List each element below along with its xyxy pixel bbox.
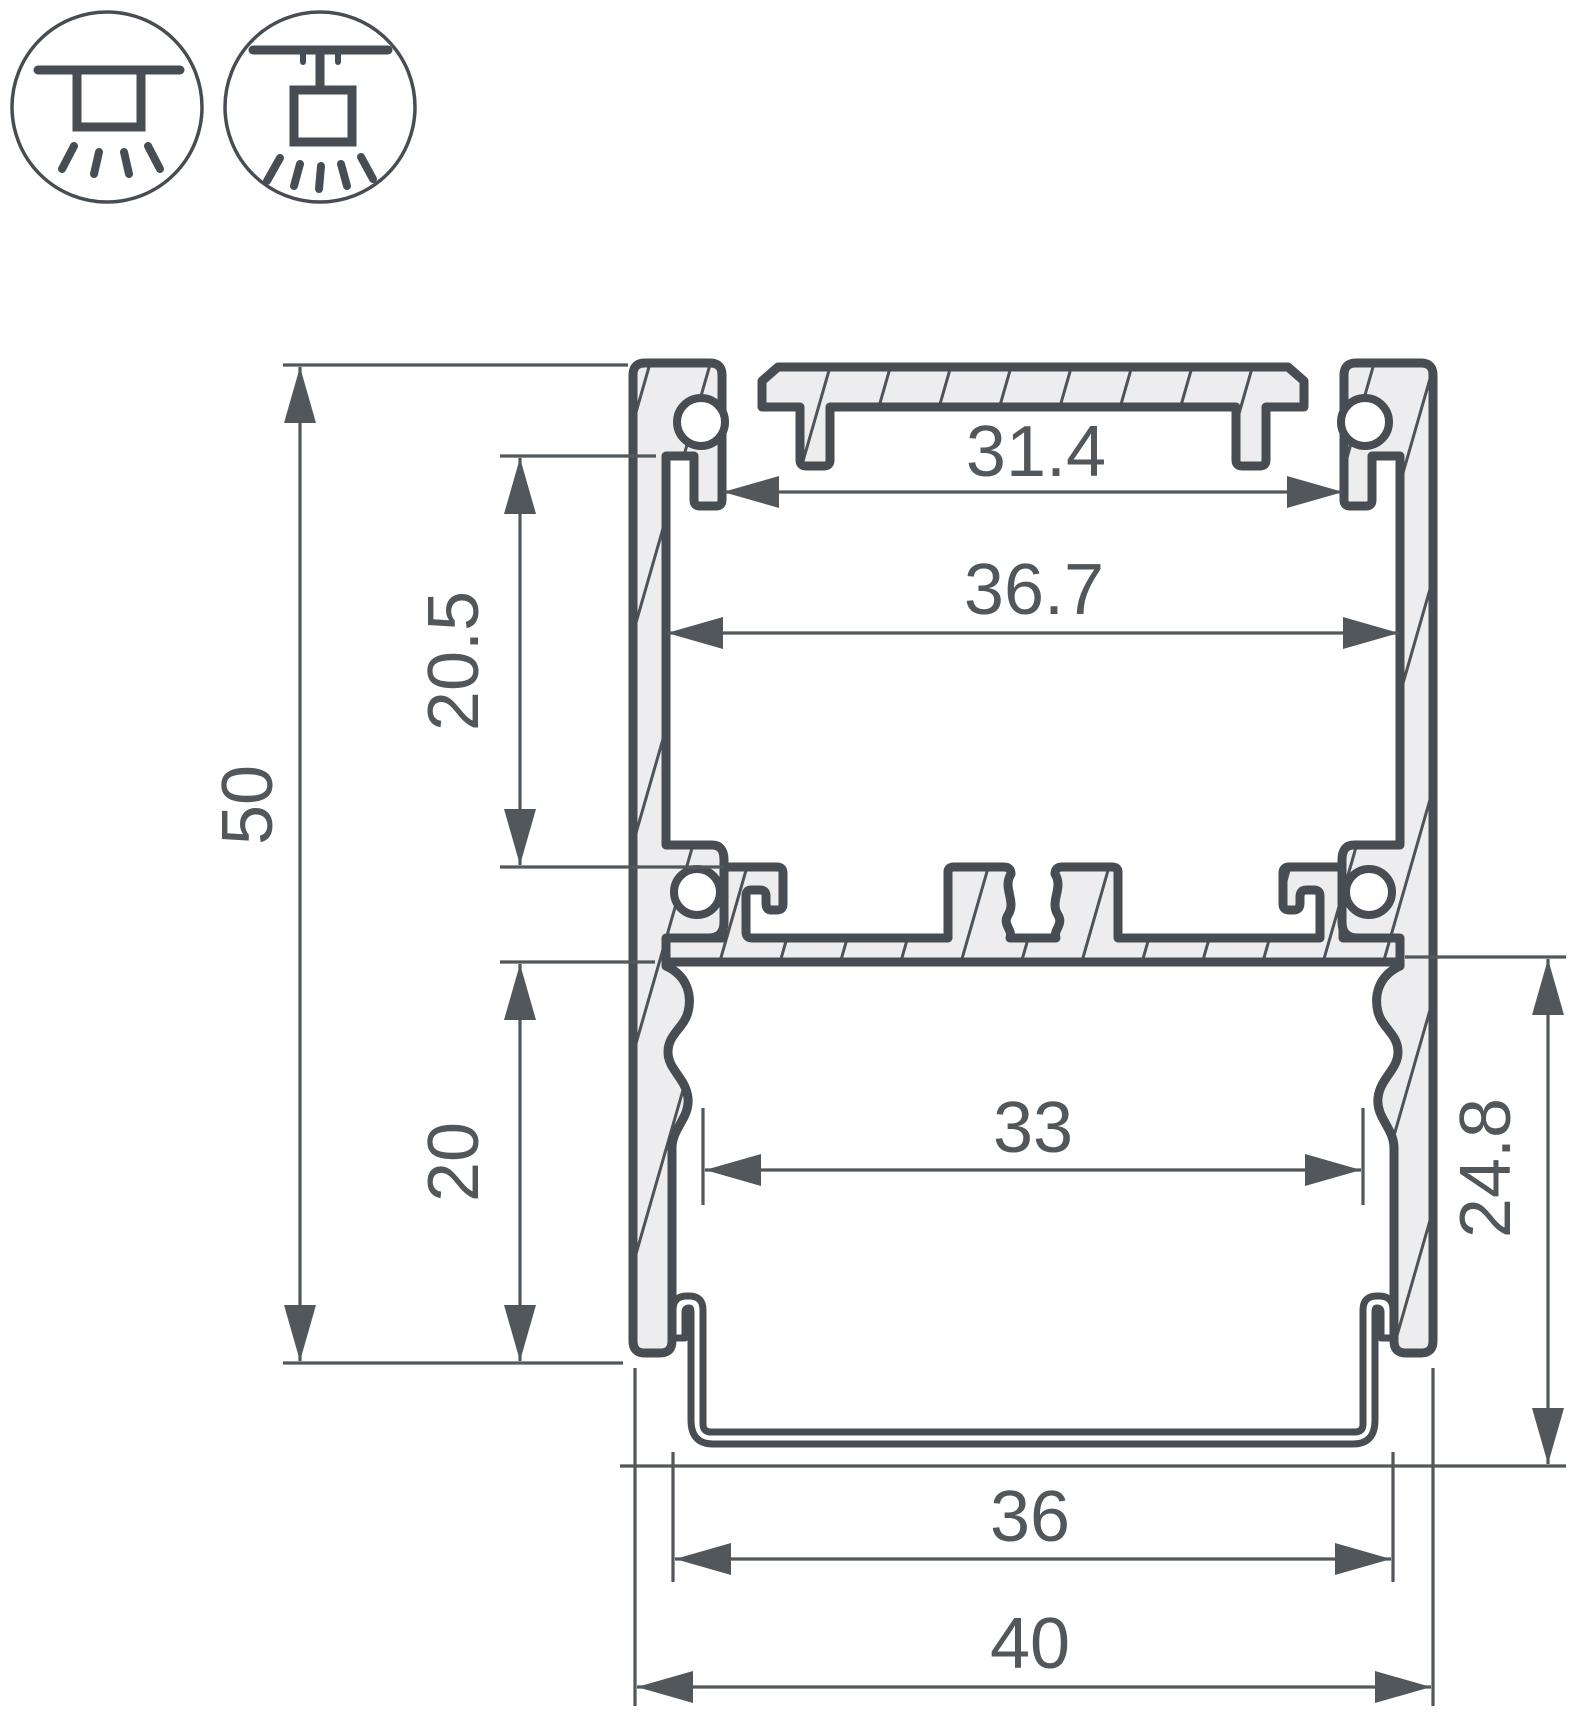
- technical-drawing-canvas: 31.4 36.7 20.5 50 20: [0, 0, 1584, 1712]
- light-rays-icon: [62, 146, 160, 174]
- mounting-icons: [12, 12, 415, 202]
- dim-lower-inner-width: 33: [703, 1088, 1363, 1205]
- dim-label-lower-cavity-height: 20: [414, 1122, 494, 1202]
- page: 31.4 36.7 20.5 50 20: [0, 0, 1584, 1712]
- dim-overall-height: 50: [208, 365, 628, 1363]
- dim-label-diffuser-drop-height: 24.8: [1446, 1098, 1526, 1238]
- dim-label-inner-width: 36.7: [964, 550, 1104, 630]
- screw-channel-notch: [1341, 398, 1389, 446]
- dim-inner-width: 36.7: [667, 550, 1399, 633]
- dim-label-diffuser-width: 36: [990, 1477, 1070, 1557]
- dim-upper-cavity-height: 20.5: [414, 456, 724, 867]
- dim-label-upper-cavity-height: 20.5: [414, 591, 494, 731]
- dim-lower-cavity-height: 20: [414, 962, 655, 1361]
- dim-diffuser-width: 36: [673, 1452, 1393, 1582]
- screw-channel-notch: [674, 869, 720, 915]
- profile-middle-shelf: [655, 867, 1411, 962]
- profile-cross-section: [633, 363, 1433, 1444]
- dim-label-lower-inner-width: 33: [993, 1088, 1073, 1168]
- dim-label-overall-width: 40: [990, 1604, 1070, 1684]
- light-rays-icon: [267, 157, 373, 189]
- dim-label-overall-height: 50: [208, 765, 288, 845]
- diffuser-cover: [673, 1296, 1393, 1444]
- screw-channel-notch: [1346, 869, 1392, 915]
- profile-left-wall: [633, 363, 724, 1353]
- profile-right-wall: [1342, 363, 1433, 1353]
- dimension-annotations: 31.4 36.7 20.5 50 20: [208, 365, 1566, 1706]
- screw-channel-notch: [677, 398, 725, 446]
- surface-mount-icon: [12, 12, 202, 202]
- dim-label-top-slot-width: 31.4: [966, 412, 1106, 492]
- pendant-mount-icon: [225, 12, 415, 202]
